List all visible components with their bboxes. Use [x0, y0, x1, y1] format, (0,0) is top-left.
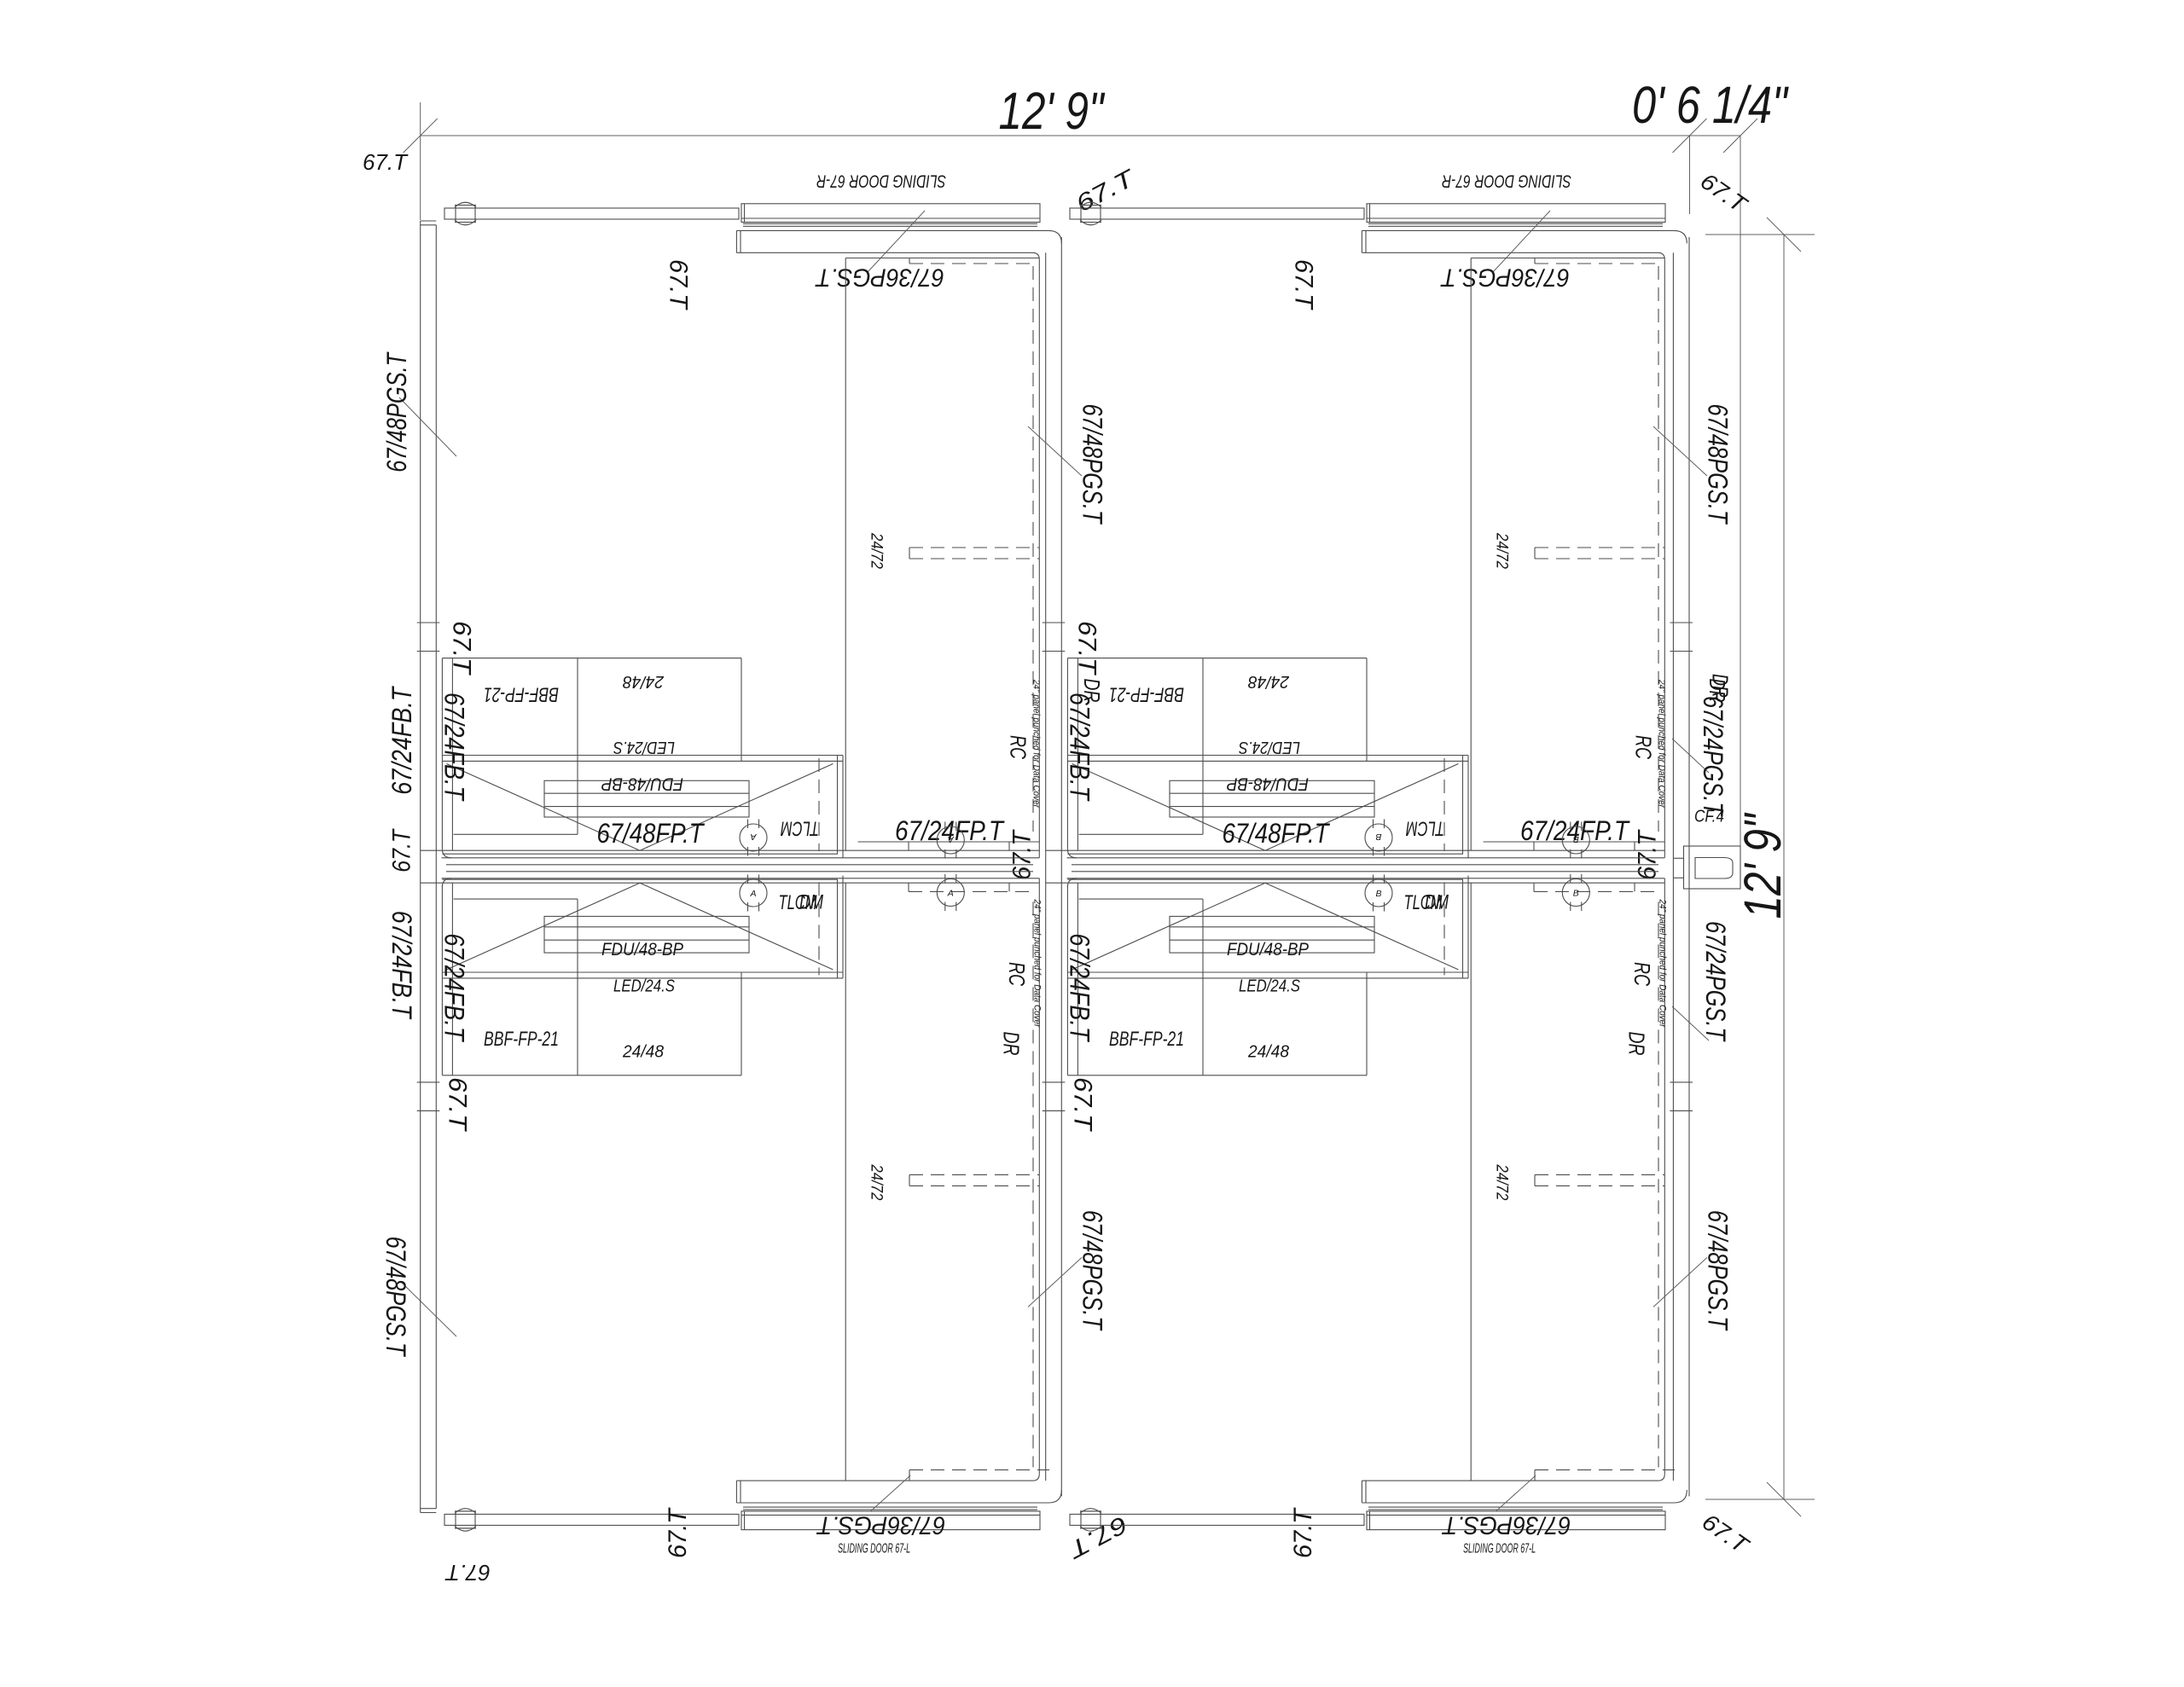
- svg-text:RC: RC: [1629, 962, 1655, 986]
- svg-text:BBF-FP-21: BBF-FP-21: [484, 1028, 559, 1051]
- svg-text:A: A: [948, 834, 955, 844]
- svg-text:67/48PGS.T: 67/48PGS.T: [380, 1237, 411, 1358]
- svg-text:67/48PGS.T: 67/48PGS.T: [1703, 404, 1734, 525]
- svg-text:67.T: 67.T: [1069, 1077, 1097, 1133]
- svg-text:BBF-FP-21: BBF-FP-21: [484, 683, 559, 706]
- svg-text:24/72: 24/72: [868, 532, 886, 569]
- svg-text:TLCM: TLCM: [1406, 817, 1444, 840]
- svg-text:SLIDING DOOR 67-L: SLIDING DOOR 67-L: [1463, 1542, 1536, 1557]
- svg-text:67.T: 67.T: [1634, 828, 1662, 880]
- svg-text:FDU/48-BP: FDU/48-BP: [601, 774, 683, 794]
- svg-text:A: A: [750, 832, 757, 842]
- svg-text:DR: DR: [999, 1032, 1025, 1056]
- svg-text:A: A: [947, 889, 954, 899]
- svg-text:67.T: 67.T: [665, 259, 693, 311]
- svg-text:SLIDING DOOR 67-R: SLIDING DOOR 67-R: [1442, 171, 1571, 191]
- svg-text:LED/24.S: LED/24.S: [613, 977, 676, 995]
- svg-text:RC: RC: [1004, 962, 1030, 986]
- svg-text:67/36PGS.T: 67/36PGS.T: [1441, 1511, 1571, 1539]
- svg-text:BBF-FP-21: BBF-FP-21: [1109, 683, 1184, 706]
- svg-text:67.T: 67.T: [448, 621, 476, 676]
- svg-text:67.T: 67.T: [363, 149, 409, 175]
- svg-text:67/24FB.T: 67/24FB.T: [386, 911, 417, 1020]
- svg-text:67/24PGS.T: 67/24PGS.T: [1700, 921, 1731, 1042]
- svg-text:67.T: 67.T: [1073, 621, 1101, 676]
- svg-text:67.T: 67.T: [444, 1077, 472, 1133]
- svg-text:67/48PGS.T: 67/48PGS.T: [1703, 1210, 1734, 1331]
- svg-text:67.T: 67.T: [1008, 828, 1037, 880]
- svg-text:24/48: 24/48: [623, 672, 665, 691]
- svg-text:DR: DR: [1705, 679, 1730, 703]
- svg-text:24/48: 24/48: [622, 1042, 664, 1061]
- svg-text:12' 9": 12' 9": [1734, 813, 1792, 919]
- svg-text:24" panel punched for Data Cov: 24" panel punched for Data Cover: [1032, 899, 1043, 1029]
- svg-text:0' 6 1/4": 0' 6 1/4": [1632, 76, 1789, 134]
- svg-text:67/36PGS.T: 67/36PGS.T: [1440, 264, 1570, 292]
- svg-text:24/72: 24/72: [1493, 1164, 1511, 1201]
- svg-text:RC: RC: [1631, 735, 1657, 759]
- svg-text:B: B: [1375, 889, 1381, 899]
- svg-text:67/24FB.T: 67/24FB.T: [1065, 693, 1095, 802]
- svg-text:67.T: 67.T: [1289, 1506, 1317, 1558]
- svg-text:24/72: 24/72: [1493, 532, 1511, 569]
- svg-text:67/48PGS.T: 67/48PGS.T: [1077, 404, 1108, 525]
- svg-text:12' 9": 12' 9": [999, 82, 1106, 140]
- svg-text:SLIDING DOOR 67-R: SLIDING DOOR 67-R: [816, 171, 946, 191]
- svg-text:B: B: [1375, 832, 1381, 842]
- svg-text:67.T: 67.T: [387, 828, 415, 872]
- svg-text:24/48: 24/48: [1248, 672, 1290, 691]
- svg-text:67/48PGS.T: 67/48PGS.T: [381, 351, 412, 472]
- svg-text:FDU/48-BP: FDU/48-BP: [1227, 774, 1309, 794]
- svg-text:67.T: 67.T: [664, 1506, 692, 1558]
- svg-text:BBF-FP-21: BBF-FP-21: [1109, 1028, 1184, 1051]
- svg-text:FDU/48-BP: FDU/48-BP: [601, 940, 683, 959]
- svg-text:FDU/48-BP: FDU/48-BP: [1227, 940, 1309, 959]
- svg-text:TLCM: TLCM: [781, 817, 819, 840]
- svg-text:67/24FB.T: 67/24FB.T: [1065, 933, 1095, 1042]
- svg-text:67/24FB.T: 67/24FB.T: [386, 686, 417, 795]
- svg-text:67/48FP.T: 67/48FP.T: [1223, 818, 1331, 849]
- svg-text:LED/24.S: LED/24.S: [1238, 738, 1300, 757]
- svg-text:24" panel punched for Data Cov: 24" panel punched for Data Cover: [1658, 899, 1668, 1029]
- svg-text:67/24FB.T: 67/24FB.T: [439, 693, 470, 802]
- svg-text:24/48: 24/48: [1247, 1042, 1289, 1061]
- svg-text:67.T: 67.T: [1290, 259, 1318, 311]
- svg-text:67/36PGS.T: 67/36PGS.T: [815, 264, 944, 292]
- svg-text:67.T: 67.T: [444, 1560, 491, 1586]
- svg-text:CF.4: CF.4: [1694, 808, 1724, 826]
- svg-text:67/24FB.T: 67/24FB.T: [439, 933, 470, 1042]
- svg-text:B: B: [1573, 834, 1579, 844]
- svg-text:SLIDING DOOR 67-L: SLIDING DOOR 67-L: [838, 1542, 910, 1557]
- svg-text:67/48FP.T: 67/48FP.T: [597, 818, 706, 849]
- svg-text:24/72: 24/72: [868, 1164, 886, 1201]
- svg-text:B: B: [1573, 889, 1579, 899]
- svg-text:A: A: [749, 889, 756, 899]
- svg-text:LED/24.S: LED/24.S: [1239, 977, 1301, 995]
- svg-text:LED/24.S: LED/24.S: [613, 738, 675, 757]
- svg-text:RC: RC: [1006, 735, 1031, 759]
- svg-text:67/48PGS.T: 67/48PGS.T: [1077, 1210, 1108, 1331]
- svg-text:DM: DM: [799, 891, 823, 914]
- svg-text:67/36PGS.T: 67/36PGS.T: [816, 1511, 945, 1539]
- svg-text:DM: DM: [1425, 891, 1449, 914]
- svg-text:DR: DR: [1624, 1032, 1650, 1056]
- svg-text:67/24PGS.T: 67/24PGS.T: [1698, 696, 1728, 817]
